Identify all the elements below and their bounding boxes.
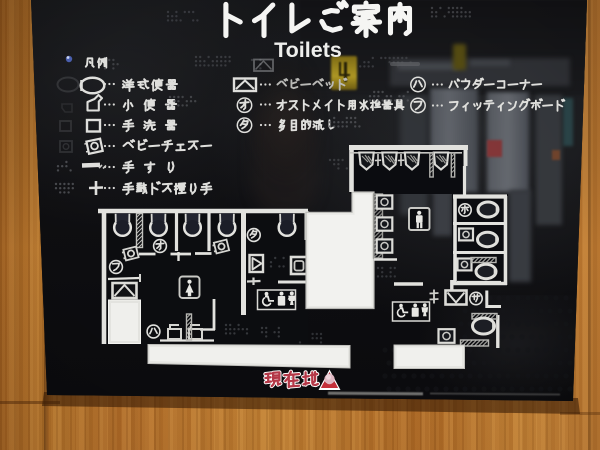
svg-text:Toilets: Toilets xyxy=(274,38,342,62)
